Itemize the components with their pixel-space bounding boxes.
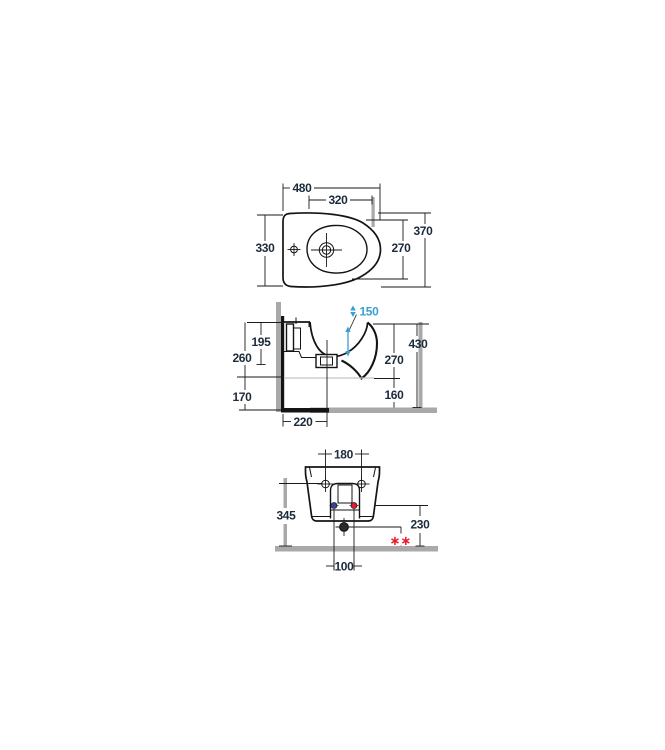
dim-label-bowl-water-depth: 150 [359,305,379,319]
front-view: ∗∗ 180 345 230 100 [275,448,438,574]
dim-label-inlet-height: 230 [410,518,430,532]
dim-label-bracket-height: 195 [251,335,271,349]
wall-face-line [281,316,284,412]
dim-label-wall-to-drain: 220 [293,415,313,429]
dim-label-overall-width: 480 [292,181,312,195]
dim-label-fixing-hole-spacing: 180 [334,448,354,462]
front-reference-bar [419,322,423,408]
dim-label-front-body-height: 270 [384,353,404,367]
wall-bar-front-upper [284,478,288,508]
technical-drawing-page: 480 320 330 370 270 [0,0,665,750]
floor-under-bidet [281,408,329,413]
wall-bar-front-lower [284,524,288,546]
dim-label-back-clearance: 170 [232,390,252,404]
dim-label-inner-depth: 270 [391,241,411,255]
note-asterisks: ∗∗ [390,534,412,549]
floor-bar-front [275,546,438,552]
dim-label-overall-depth: 370 [413,224,433,238]
floor-bar-side [310,408,437,414]
side-view: 195 260 170 150 430 270 160 220 [232,302,437,429]
dim-label-inlet-spacing: 100 [334,560,354,574]
dim-label-fixing-hole-height: 345 [276,509,296,523]
dim-label-rim-height: 430 [408,337,428,351]
basin-outline [307,225,367,273]
trap-fitting [316,355,337,368]
dim-label-side-depth: 330 [255,241,275,255]
top-view: 480 320 330 370 270 [255,181,433,287]
dim-label-inner-width: 320 [328,193,348,207]
wall-bar-side [276,302,281,412]
dim-label-back-height: 260 [232,351,252,365]
dim-label-underside-clearance: 160 [384,388,404,402]
bidet-technical-drawing: 480 320 330 370 270 [0,0,665,750]
inlet-shroud-outline [331,484,360,519]
